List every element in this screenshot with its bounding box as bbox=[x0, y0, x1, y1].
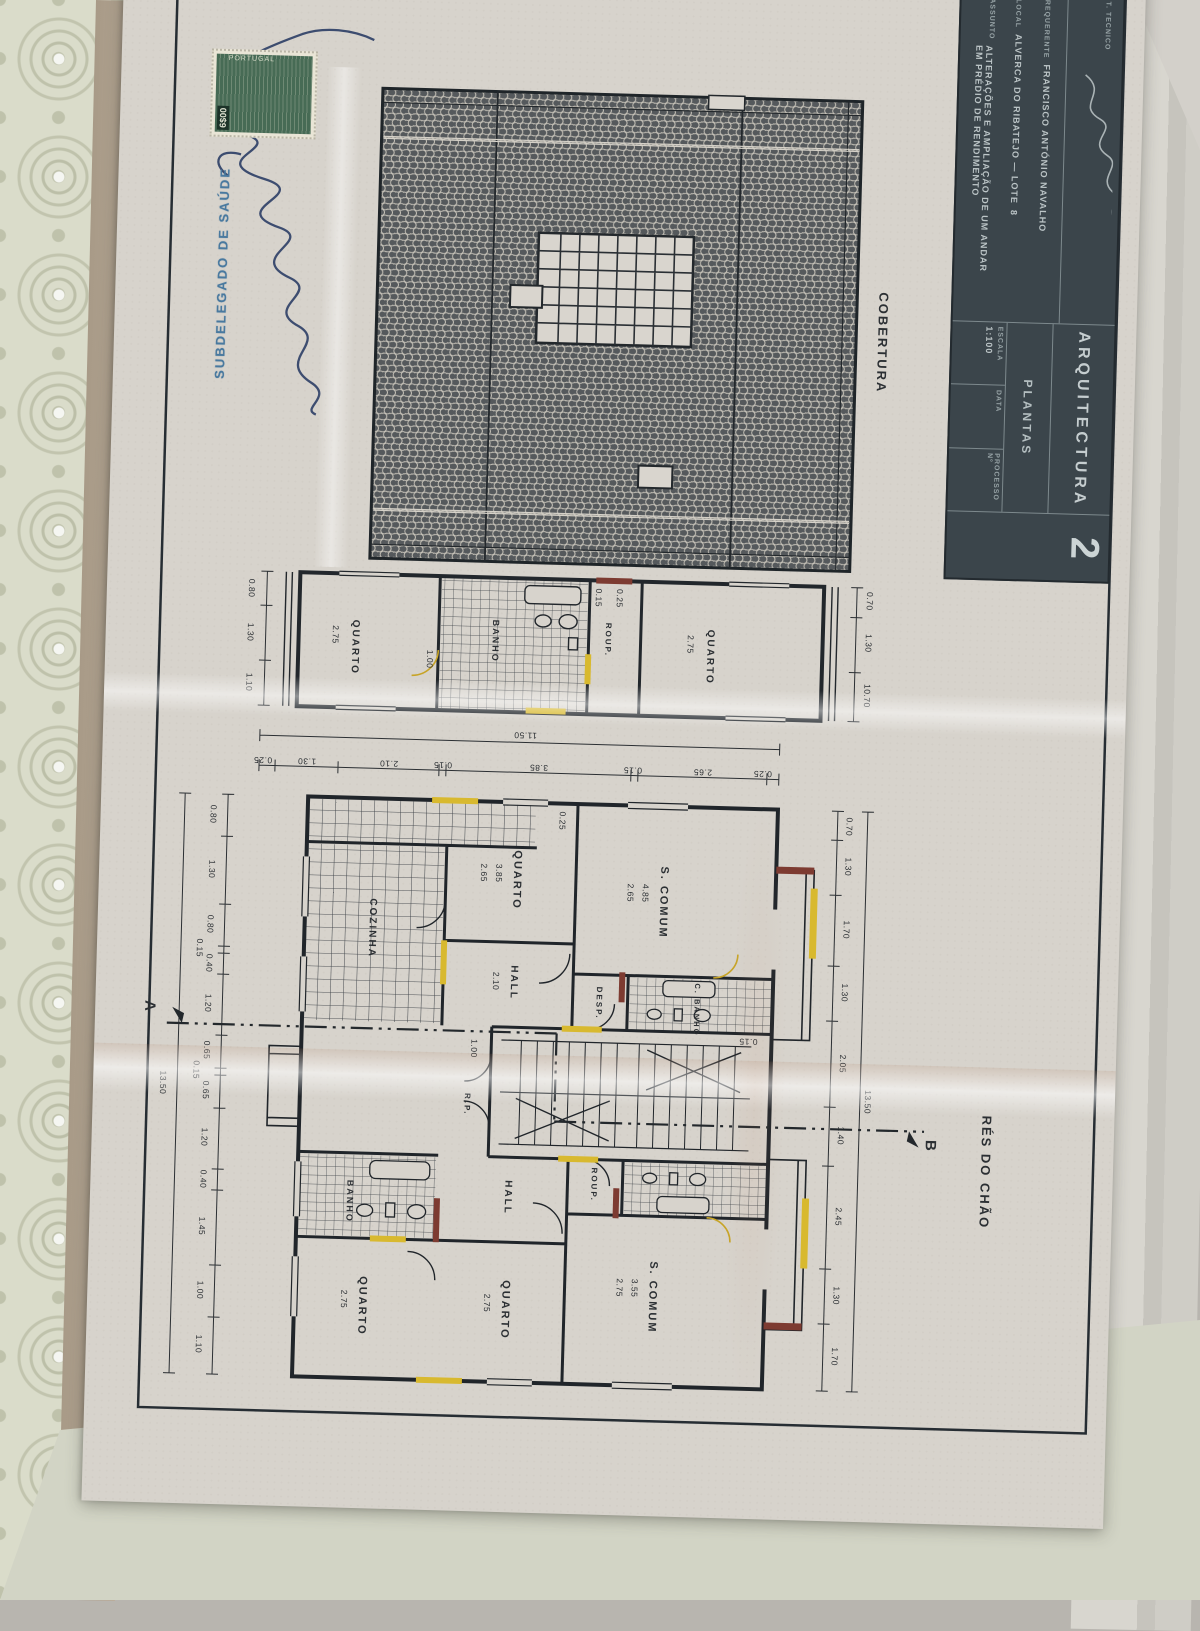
technician-label: T. TECNICO bbox=[1103, 1, 1111, 50]
technician-cell: T. TECNICO bbox=[1059, 0, 1124, 325]
svg-text:2.65: 2.65 bbox=[693, 767, 712, 778]
svg-text:QUARTO: QUARTO bbox=[349, 620, 362, 675]
svg-text:2.65: 2.65 bbox=[625, 883, 636, 902]
section-line: A B bbox=[138, 1000, 942, 1153]
process-label: PROCESSO Nº bbox=[985, 453, 1001, 508]
svg-text:0.15: 0.15 bbox=[191, 1060, 202, 1079]
svg-text:1.10: 1.10 bbox=[244, 673, 255, 692]
local-lot-number: 8 bbox=[1009, 210, 1019, 216]
svg-text:0.70: 0.70 bbox=[865, 592, 876, 611]
photo-of-floor-plan: { "stamps": { "health": "SUBDELEGADO DE … bbox=[0, 0, 1200, 1600]
tax-stamp-engraving: 6$00 PORTUGAL bbox=[215, 54, 313, 135]
local-value: ALVERCA DO RIBATEJO — LOTE bbox=[1009, 34, 1024, 204]
svg-text:2.10: 2.10 bbox=[491, 972, 502, 991]
svg-text:1.30: 1.30 bbox=[831, 1286, 842, 1305]
title-block-left: T. TECNICO REQUERENTE FRANCISCO ANTÓNIO … bbox=[953, 0, 1124, 326]
svg-text:1.00: 1.00 bbox=[469, 1039, 480, 1058]
svg-text:S. COMUM: S. COMUM bbox=[656, 866, 670, 939]
svg-text:1.00: 1.00 bbox=[425, 650, 436, 669]
svg-text:1.30: 1.30 bbox=[840, 983, 851, 1002]
discipline-label: ARQUITECTURA bbox=[1047, 324, 1114, 515]
svg-text:0.80: 0.80 bbox=[205, 915, 216, 934]
svg-text:2.75: 2.75 bbox=[482, 1294, 493, 1313]
svg-text:2.10: 2.10 bbox=[379, 758, 398, 769]
svg-text:3.85: 3.85 bbox=[494, 864, 505, 883]
svg-text:11.50: 11.50 bbox=[514, 730, 537, 741]
chimney bbox=[510, 285, 543, 308]
svg-text:13.50: 13.50 bbox=[863, 1090, 874, 1114]
svg-text:1.20: 1.20 bbox=[199, 1128, 210, 1147]
svg-text:1.30: 1.30 bbox=[297, 756, 316, 767]
svg-text:0.40: 0.40 bbox=[198, 1170, 209, 1189]
process-cell: PROCESSO Nº bbox=[947, 448, 1003, 512]
svg-text:0.25: 0.25 bbox=[615, 589, 626, 608]
svg-text:1.00: 1.00 bbox=[195, 1281, 206, 1300]
chimney bbox=[638, 466, 673, 489]
requerente-value: FRANCISCO ANTÓNIO NAVALHO bbox=[1038, 64, 1053, 232]
svg-text:S. COMUM: S. COMUM bbox=[645, 1261, 659, 1334]
svg-text:BANHO: BANHO bbox=[344, 1180, 355, 1223]
svg-text:0.70: 0.70 bbox=[844, 817, 855, 836]
date-cell: DATA bbox=[949, 385, 1005, 450]
svg-text:1.30: 1.30 bbox=[863, 634, 874, 653]
svg-text:0.15: 0.15 bbox=[623, 765, 642, 776]
requerente-label: REQUERENTE bbox=[1042, 0, 1051, 59]
scale-label: ESCALA bbox=[995, 327, 1004, 382]
title-block-middle: ARQUITECTURA PLANTAS ESCALA 1:100 DATA P… bbox=[947, 321, 1114, 515]
svg-text:10.70: 10.70 bbox=[862, 684, 873, 708]
skylight bbox=[536, 233, 694, 347]
svg-text:QUARTO: QUARTO bbox=[703, 629, 716, 684]
project-fields: REQUERENTE FRANCISCO ANTÓNIO NAVALHO LOC… bbox=[953, 0, 1068, 323]
staircase bbox=[499, 1040, 752, 1151]
svg-text:0.15: 0.15 bbox=[195, 938, 206, 957]
svg-text:3.85: 3.85 bbox=[529, 763, 548, 774]
svg-text:1.30: 1.30 bbox=[843, 857, 854, 876]
svg-text:2.65: 2.65 bbox=[479, 863, 490, 882]
svg-text:1.20: 1.20 bbox=[203, 994, 214, 1013]
svg-text:0.15: 0.15 bbox=[594, 588, 605, 607]
title-block-bottom-row: ESCALA 1:100 DATA PROCESSO Nº bbox=[947, 321, 1006, 511]
svg-text:QUARTO: QUARTO bbox=[498, 1280, 512, 1340]
scale-cell: ESCALA 1:100 bbox=[951, 321, 1007, 386]
svg-text:2.75: 2.75 bbox=[614, 1278, 625, 1297]
svg-text:QUARTO: QUARTO bbox=[510, 850, 524, 910]
svg-text:A: A bbox=[141, 1000, 158, 1013]
tax-stamp: 6$00 PORTUGAL bbox=[210, 49, 318, 140]
assunto-label: ASSUNTO bbox=[987, 0, 995, 39]
technician-signature bbox=[1071, 65, 1116, 246]
svg-text:0.80: 0.80 bbox=[208, 805, 219, 824]
svg-text:HALL: HALL bbox=[502, 1180, 514, 1215]
svg-text:1.45: 1.45 bbox=[197, 1217, 208, 1236]
scale-value: 1:100 bbox=[983, 326, 995, 381]
tax-stamp-country: PORTUGAL bbox=[229, 55, 276, 63]
roof-label: COBERTURA bbox=[874, 292, 892, 393]
svg-text:1.70: 1.70 bbox=[829, 1347, 840, 1366]
svg-text:1.30: 1.30 bbox=[245, 623, 256, 642]
svg-text:ROUP.: ROUP. bbox=[603, 623, 613, 658]
svg-text:1.30: 1.30 bbox=[207, 860, 218, 879]
svg-text:4.85: 4.85 bbox=[640, 884, 651, 903]
svg-text:QUARTO: QUARTO bbox=[355, 1276, 369, 1336]
svg-text:1.10: 1.10 bbox=[194, 1335, 205, 1354]
svg-text:2.75: 2.75 bbox=[685, 635, 696, 654]
svg-text:0.25: 0.25 bbox=[753, 769, 772, 780]
svg-text:0.15: 0.15 bbox=[433, 760, 452, 771]
svg-text:3.55: 3.55 bbox=[629, 1279, 640, 1298]
svg-text:2.05: 2.05 bbox=[838, 1054, 849, 1073]
drawing-content-rotated: COBERTURA QUARTO 2.75 ROUP. BANHO QUARTO… bbox=[81, 0, 1146, 1529]
content-label: PLANTAS bbox=[1001, 323, 1052, 513]
tax-stamp-value: 6$00 bbox=[217, 106, 230, 130]
svg-text:B: B bbox=[921, 1140, 938, 1153]
svg-text:R.P.: R.P. bbox=[462, 1093, 472, 1116]
local-label: LOCAL bbox=[1014, 0, 1022, 28]
attic-plan bbox=[283, 569, 839, 723]
svg-text:0.25: 0.25 bbox=[557, 811, 568, 830]
sheet-number: 2 bbox=[946, 511, 1110, 581]
svg-text:0.65: 0.65 bbox=[202, 1041, 213, 1060]
svg-text:13.50: 13.50 bbox=[158, 1070, 169, 1094]
svg-text:1.70: 1.70 bbox=[841, 920, 852, 939]
drawing-sheet: COBERTURA QUARTO 2.75 ROUP. BANHO QUARTO… bbox=[81, 0, 1146, 1529]
date-label: DATA bbox=[993, 390, 1002, 445]
svg-text:0.25: 0.25 bbox=[253, 755, 272, 766]
svg-text:DESP.: DESP. bbox=[594, 987, 604, 1020]
roof-notch bbox=[709, 95, 745, 110]
svg-text:0.40: 0.40 bbox=[204, 954, 215, 973]
svg-text:2.45: 2.45 bbox=[833, 1207, 844, 1226]
floor-label: RÉS DO CHÃO bbox=[976, 1115, 994, 1229]
title-block: T. TECNICO REQUERENTE FRANCISCO ANTÓNIO … bbox=[943, 0, 1125, 584]
roof-plan bbox=[370, 86, 863, 571]
svg-text:2.75: 2.75 bbox=[330, 625, 341, 644]
svg-text:2.75: 2.75 bbox=[339, 1290, 350, 1309]
svg-text:ROUP.: ROUP. bbox=[589, 1167, 599, 1202]
svg-text:C. BANHO: C. BANHO bbox=[692, 983, 702, 1036]
svg-text:HALL: HALL bbox=[508, 965, 520, 1000]
svg-text:BANHO: BANHO bbox=[490, 620, 501, 663]
svg-text:0.65: 0.65 bbox=[201, 1081, 212, 1100]
svg-text:0.80: 0.80 bbox=[247, 579, 258, 598]
svg-text:COZINHA: COZINHA bbox=[366, 898, 379, 958]
